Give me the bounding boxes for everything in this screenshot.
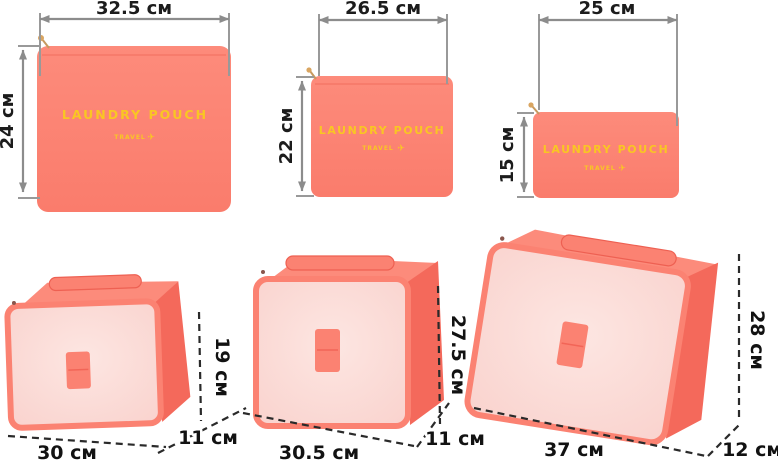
cube-medium-right-face bbox=[406, 261, 444, 425]
pouch-large: LAUNDRY POUCH TRAVEL ✈ bbox=[37, 35, 231, 212]
pouch-medium-plane-icon: ✈ bbox=[397, 144, 405, 154]
cube-medium-zipper-pull-icon bbox=[261, 270, 265, 274]
cube-small-height-line bbox=[199, 312, 201, 421]
pouch-small-width-label: 25 см bbox=[579, 0, 636, 19]
cube-small bbox=[6, 273, 191, 428]
cube-large-depth-label: 12 см bbox=[722, 439, 778, 461]
pouch-medium: LAUNDRY POUCH TRAVEL ✈ bbox=[306, 67, 453, 197]
pouch-medium-height-label: 22 см bbox=[276, 108, 297, 165]
pouch-large-width-label: 32.5 см bbox=[96, 0, 172, 19]
pouch-large-title: LAUNDRY POUCH bbox=[62, 107, 208, 122]
cube-medium-logo-patch bbox=[315, 329, 340, 372]
cube-small-height-label: 19 см bbox=[211, 337, 233, 397]
pouch-medium-height-dim: 22 см bbox=[276, 77, 314, 196]
pouch-small-title: LAUNDRY POUCH bbox=[543, 143, 670, 156]
cube-medium-depth-label: 11 см bbox=[425, 428, 485, 450]
pouch-small-width-dim: 25 см bbox=[539, 0, 677, 126]
pouch-medium-width-label: 26.5 см bbox=[345, 0, 421, 19]
pouch-medium-title: LAUNDRY POUCH bbox=[319, 124, 446, 137]
pouch-large-height-label: 24 см bbox=[0, 93, 18, 150]
cube-medium-handle bbox=[286, 256, 394, 270]
product-dimensions-figure: LAUNDRY POUCH TRAVEL ✈ 32.5 см 24 см LAU… bbox=[0, 0, 778, 461]
cube-small-depth-label: 11 см bbox=[178, 427, 238, 449]
pouch-small-subtitle: TRAVEL bbox=[584, 165, 616, 172]
cube-medium-height-label: 27.5 см bbox=[447, 315, 469, 395]
cube-small-handle bbox=[49, 275, 141, 291]
cube-large-height-label: 28 см bbox=[746, 310, 768, 370]
cube-large-width-label: 37 см bbox=[544, 439, 604, 461]
pouch-medium-subtitle: TRAVEL bbox=[362, 145, 394, 152]
pouch-small-height-dim: 15 см bbox=[497, 113, 534, 197]
cube-large-zipper-pull-icon bbox=[500, 236, 505, 241]
cube-small-width-label: 30 см bbox=[37, 442, 97, 461]
cube-large bbox=[465, 223, 726, 449]
cube-small-logo-patch bbox=[66, 351, 91, 389]
pouch-small-height-label: 15 см bbox=[497, 127, 518, 184]
pouch-large-plane-icon: ✈ bbox=[147, 133, 155, 143]
pouch-large-body bbox=[37, 46, 231, 212]
cube-medium-width-label: 30.5 см bbox=[279, 442, 359, 461]
pouch-medium-width-dim: 26.5 см bbox=[319, 0, 447, 84]
pouch-large-height-dim: 24 см bbox=[0, 46, 40, 198]
pouch-small: LAUNDRY POUCH TRAVEL ✈ bbox=[528, 102, 679, 198]
pouch-large-subtitle: TRAVEL bbox=[114, 134, 146, 141]
cube-medium bbox=[256, 256, 444, 426]
pouch-small-plane-icon: ✈ bbox=[618, 164, 626, 174]
dimensions-canvas: LAUNDRY POUCH TRAVEL ✈ 32.5 см 24 см LAU… bbox=[0, 0, 778, 461]
